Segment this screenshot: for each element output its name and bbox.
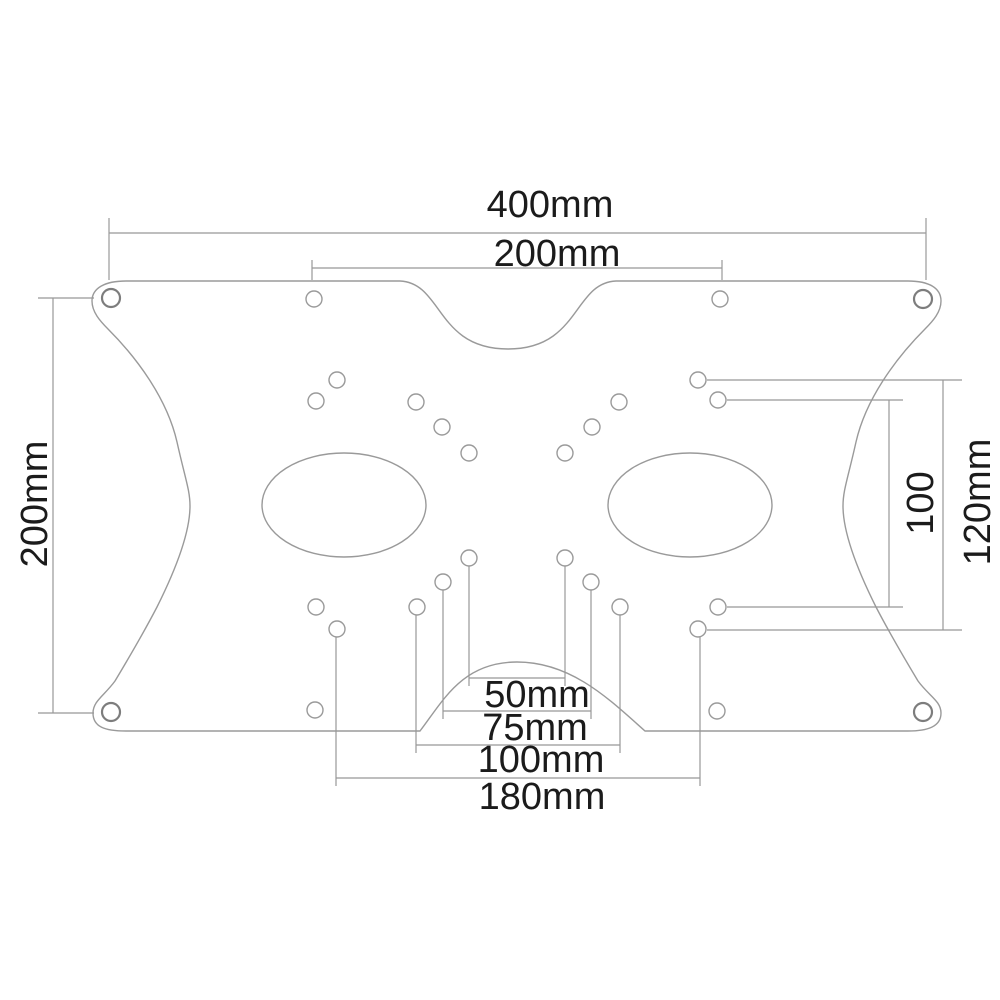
vesa50-hole <box>461 550 477 566</box>
corner-hole-bottom-left <box>102 703 120 721</box>
corner-hole-top-right <box>914 290 932 308</box>
top-edge-hole-right <box>712 291 728 307</box>
corner-hole-top-left <box>102 289 120 307</box>
outer-hole <box>329 372 345 388</box>
plate-outline <box>92 281 941 731</box>
inner-hole <box>710 599 726 615</box>
dim-label-100mm: 100mm <box>478 739 605 781</box>
top-edge-hole-left <box>306 291 322 307</box>
inner-pattern-holes <box>308 372 726 637</box>
vesa75-hole <box>584 419 600 435</box>
dimension-75mm-bottom: 75mm <box>443 590 591 749</box>
dimension-50mm-bottom: 50mm <box>469 566 590 716</box>
vesa100-hole <box>612 599 628 615</box>
dimension-120mm-right: 120mm <box>707 380 999 630</box>
vesa-plate-dimension-drawing: 400mm 200mm 200mm 100 120mm <box>0 0 1000 1000</box>
outer-hole <box>329 621 345 637</box>
dimension-100-right: 100 <box>727 400 942 607</box>
bottom-edge-hole-left <box>307 702 323 718</box>
outer-hole <box>690 372 706 388</box>
vesa75-hole <box>434 419 450 435</box>
dimension-200mm-left: 200mm <box>14 298 94 713</box>
vesa100-hole <box>611 394 627 410</box>
vesa50-hole <box>557 550 573 566</box>
dimension-200mm-top: 200mm <box>312 233 722 280</box>
vesa75-hole <box>583 574 599 590</box>
vesa50-hole <box>461 445 477 461</box>
dim-label-200mm-top: 200mm <box>494 233 621 275</box>
inner-hole <box>710 392 726 408</box>
dim-label-180mm: 180mm <box>479 776 606 818</box>
outer-hole <box>690 621 706 637</box>
cable-cutout-right <box>608 453 772 557</box>
inner-hole <box>308 599 324 615</box>
diagram-canvas: 400mm 200mm 200mm 100 120mm <box>0 0 1000 1000</box>
edge-holes <box>306 291 728 719</box>
cable-cutout-left <box>262 453 426 557</box>
dim-label-120mm-right: 120mm <box>957 439 999 566</box>
corner-hole-bottom-right <box>914 703 932 721</box>
bottom-edge-hole-right <box>709 703 725 719</box>
dim-label-100-right: 100 <box>900 471 942 534</box>
plate-outline-group <box>92 281 941 731</box>
vesa50-hole <box>557 445 573 461</box>
dim-label-400mm: 400mm <box>487 184 614 226</box>
vesa100-hole <box>408 394 424 410</box>
dim-label-200mm-left: 200mm <box>14 441 56 568</box>
vesa100-hole <box>409 599 425 615</box>
corner-holes <box>102 289 932 721</box>
vesa75-hole <box>435 574 451 590</box>
inner-hole <box>308 393 324 409</box>
